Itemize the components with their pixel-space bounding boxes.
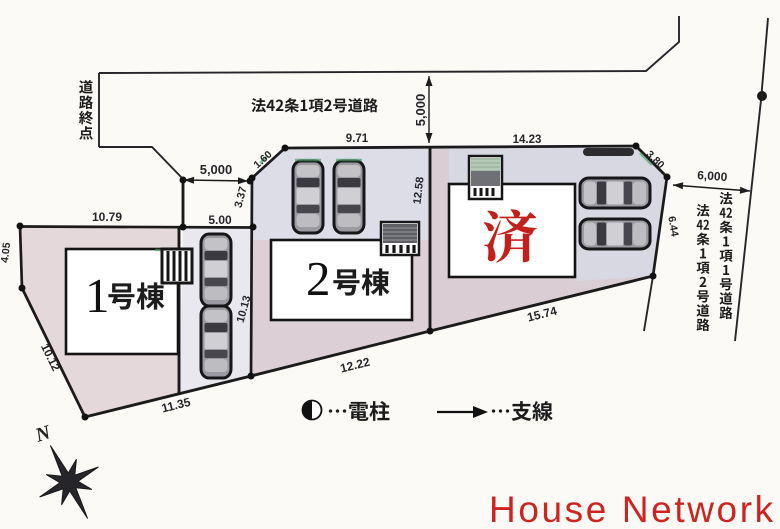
svg-text:N: N	[32, 421, 55, 447]
svg-text:2: 2	[306, 251, 331, 306]
svg-text:12.22: 12.22	[339, 355, 372, 376]
svg-text:House Network: House Network	[489, 489, 776, 529]
svg-text:3.37: 3.37	[233, 185, 250, 209]
svg-text:5,000: 5,000	[200, 162, 233, 177]
svg-text:4.05: 4.05	[0, 242, 13, 264]
svg-text:1: 1	[85, 268, 110, 323]
svg-text:10.79: 10.79	[92, 210, 122, 224]
svg-text:6.44: 6.44	[665, 215, 680, 237]
svg-text:14.23: 14.23	[513, 134, 542, 146]
svg-text:5,000: 5,000	[413, 94, 428, 127]
svg-text:9.71: 9.71	[346, 133, 369, 145]
svg-text:5.00: 5.00	[208, 213, 232, 227]
svg-text:6,000: 6,000	[697, 168, 728, 184]
